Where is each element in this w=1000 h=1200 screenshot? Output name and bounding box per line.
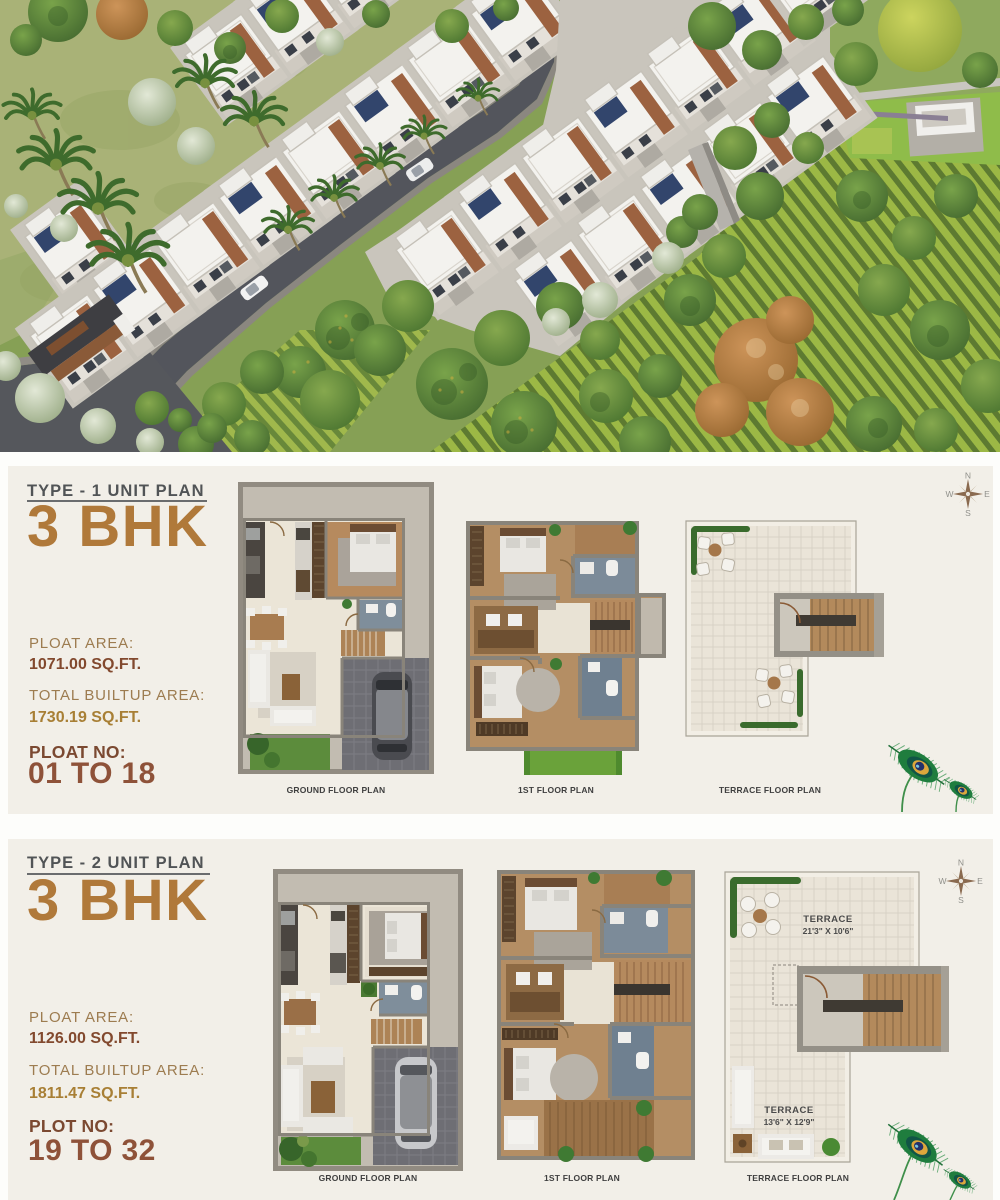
svg-text:S: S <box>965 508 971 517</box>
svg-text:S: S <box>958 895 964 904</box>
svg-text:W: W <box>945 489 953 499</box>
svg-text:W: W <box>938 876 946 886</box>
svg-text:TERRACE: TERRACE <box>803 914 852 925</box>
svg-text:N: N <box>958 858 964 868</box>
svg-text:E: E <box>977 876 983 886</box>
svg-text:21'3" X 10'6": 21'3" X 10'6" <box>803 926 854 936</box>
svg-text:TERRACE: TERRACE <box>764 1105 813 1116</box>
svg-text:E: E <box>984 489 990 499</box>
svg-text:13'6" X 12'9": 13'6" X 12'9" <box>764 1117 815 1127</box>
svg-text:N: N <box>965 471 971 481</box>
